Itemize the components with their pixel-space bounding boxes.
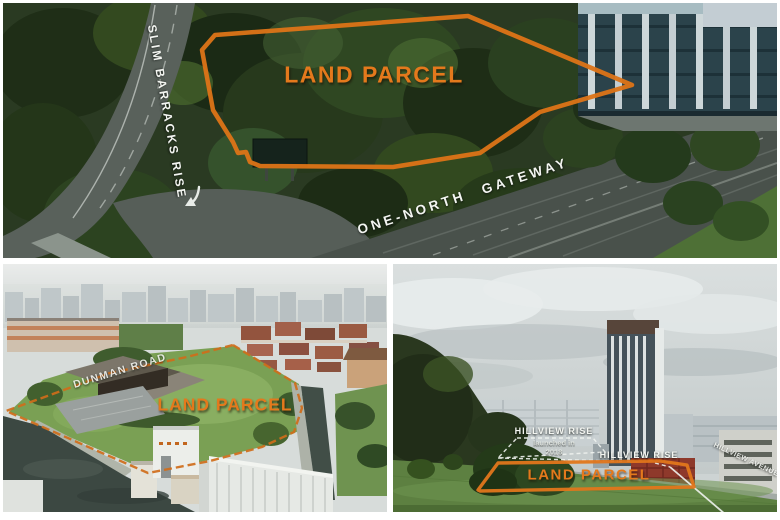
scenery-dunman: [3, 264, 387, 512]
land-parcel-label: LAND PARCEL: [157, 395, 292, 416]
street-label-hillview-rise: HILLVIEW RISE: [600, 450, 679, 460]
photo-panel-hillview: HILLVIEW RISE launched in 2018 HILLVIEW …: [393, 264, 777, 512]
site-note-line1: launched in: [533, 439, 575, 448]
land-parcel-label: LAND PARCEL: [284, 62, 464, 89]
photo-panel-one-north: LAND PARCEL SLIM BARRACKS RISE ONE-NORTH…: [3, 3, 777, 258]
photo-panel-dunman: LAND PARCEL DUNMAN ROAD: [3, 264, 387, 512]
photo-collage: LAND PARCEL SLIM BARRACKS RISE ONE-NORTH…: [0, 0, 780, 520]
site-label-hillview-rise-2018: HILLVIEW RISE: [515, 426, 594, 436]
land-parcel-label: LAND PARCEL: [528, 467, 651, 484]
site-note-launch-year: launched in 2018: [533, 439, 575, 458]
site-note-line2: 2018: [533, 448, 575, 457]
